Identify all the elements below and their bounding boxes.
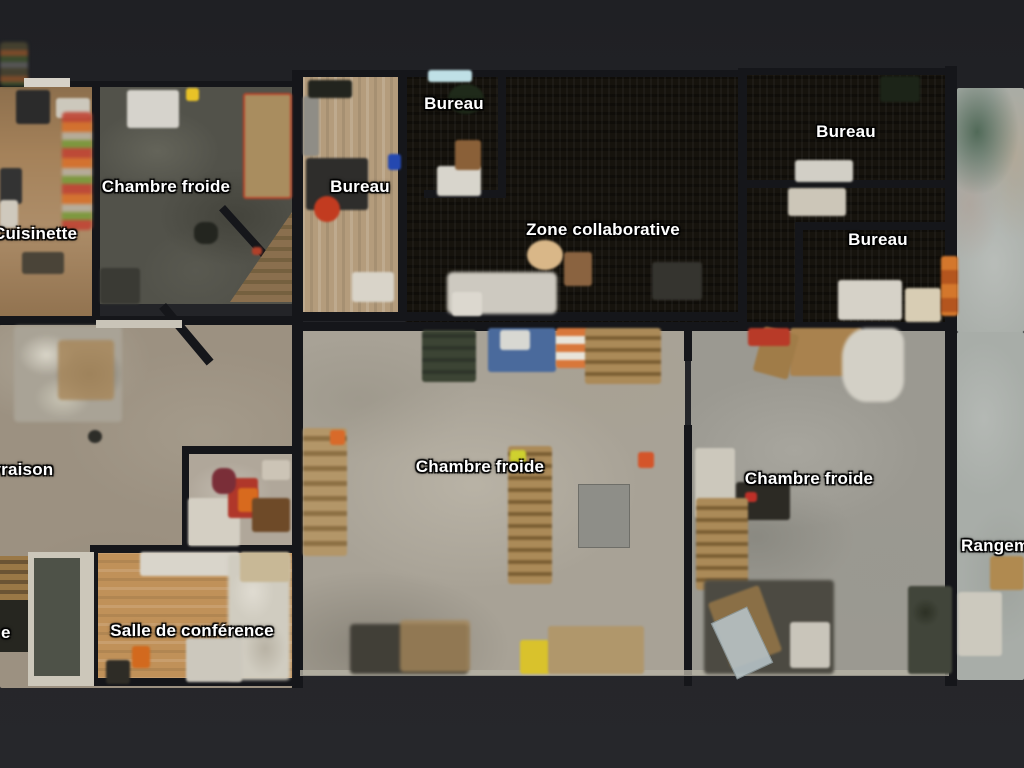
white-pile [842,328,904,402]
white-desk [352,272,394,302]
cardboard-sheet [548,626,644,674]
gray-slab [578,484,630,548]
white-on-tarp [500,330,530,350]
pallet-stack [696,498,748,590]
white-table [140,552,240,576]
cardboard-bits [400,620,470,672]
cardboard-box [455,140,481,170]
wall [745,68,947,75]
pantry-shelf [62,112,92,230]
round-table [527,240,563,270]
blue-item [388,154,401,170]
white-desk [838,280,902,320]
brown-table [252,498,290,532]
wall [292,70,303,688]
cardboard [58,340,114,400]
red-item [252,247,262,255]
dark-cabinet [0,168,22,204]
wood-shelf [990,556,1024,590]
white-object [0,200,18,228]
wall [738,68,747,322]
dark-sofa [652,262,702,300]
pallet-stack [0,556,30,600]
pallet-column [508,446,552,584]
yellow-objects [520,640,550,674]
wall [182,446,298,454]
orange-item [638,452,654,468]
white-box [790,622,830,668]
cabinet [303,96,319,156]
white-boxes [788,188,846,216]
yellow-item [510,450,526,464]
burgundy-chair [212,468,236,494]
shelving-rack [243,93,292,199]
dark-dot [88,430,102,443]
wall-highlight [24,78,70,87]
orange-ladder [556,328,588,368]
counter [22,252,64,274]
plant [448,84,484,114]
floorplan-view: { "view": { "description": "Top-down dol… [0,0,1024,768]
wood-crate [564,252,592,286]
plants [880,76,920,102]
wall [684,331,692,361]
white-chair [452,292,482,316]
dark-shelf [308,80,352,98]
dark-object [194,222,218,244]
ramp [34,558,80,676]
white-boxes [958,592,1002,656]
orange-item [132,646,150,668]
dark-corner [100,268,140,304]
white-bits [262,460,290,480]
cream-boxes [905,288,941,322]
wall [398,70,407,314]
red-chair [314,196,340,222]
yellow-item [186,88,199,101]
white-desk [795,160,853,182]
appliance [16,90,50,124]
green-crate [422,330,476,382]
wall [684,425,692,686]
wall [798,222,947,230]
dock-edge [96,320,182,328]
cardboard [240,552,290,582]
orange-shelf [941,256,958,316]
freezer-unit [127,90,179,128]
dark-object [106,660,130,684]
mossy-crates [908,586,952,674]
white-table [186,638,242,682]
wood-shelf [303,428,347,556]
white-desk [437,166,481,196]
red-items [748,328,790,346]
room-right-top[interactable] [957,88,1024,332]
wall [92,83,100,320]
wall [300,70,745,77]
skylight [428,70,472,82]
wall [498,76,506,196]
pallet-stack [585,328,661,384]
wall [795,222,803,322]
orange-item [330,430,345,445]
